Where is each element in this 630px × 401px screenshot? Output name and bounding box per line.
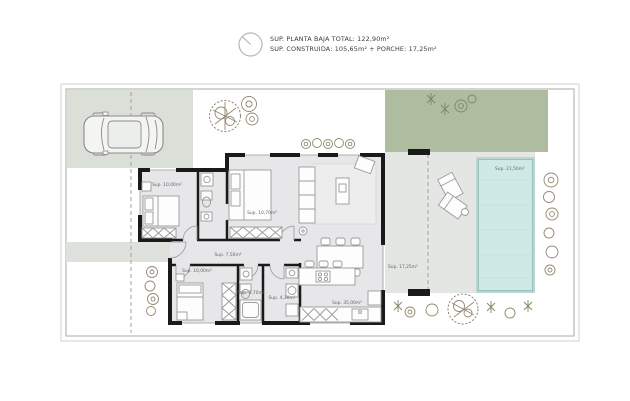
wardrobe <box>230 227 282 238</box>
wardrobe <box>222 283 236 320</box>
side-table <box>462 209 469 216</box>
bedroom1-area-label: Sup. 10,00m² <box>152 182 182 188</box>
laundry-fixtures <box>286 268 298 316</box>
kitchen-island <box>299 268 355 285</box>
left-plant-column <box>145 267 159 316</box>
tree-cluster-top <box>210 97 259 132</box>
ensuite-bathroom-fixtures <box>201 173 213 221</box>
oven-unit <box>368 291 381 305</box>
kitchen-counter <box>300 307 381 322</box>
lawn-area <box>385 90 548 152</box>
drawing-sheet: SUP. PLANTA BAJA TOTAL: 122,90m² SUP. CO… <box>0 0 630 401</box>
entrance-walkway <box>66 242 170 262</box>
porch-column-bottom <box>408 289 430 296</box>
kitchen-living-area-label: Sup. 35,00m² <box>332 300 362 306</box>
bedroom3-area-label: Sup. 10,00m² <box>182 268 212 274</box>
swimming-pool <box>476 157 535 293</box>
bedroom2-area-label: Sup. 10,70m² <box>247 210 277 216</box>
tv-unit <box>336 178 349 204</box>
hallway-area-label: Sup. 7,50m² <box>215 252 242 258</box>
living-room-furniture <box>299 156 376 235</box>
laundry-area-label: Sup. 4,30m² <box>269 295 296 301</box>
porch-area-label: Sup. 17,25m² <box>388 264 418 270</box>
right-edge-bushes <box>544 173 559 275</box>
wardrobe <box>142 228 176 238</box>
bush-row-above-living <box>302 139 355 149</box>
bottom-right-vegetation <box>394 294 532 324</box>
floor-lamp <box>299 227 307 235</box>
pool-area-label: Sup. 21,50m² <box>495 166 525 172</box>
porch-column-top <box>408 149 430 155</box>
floor-plan: Sup. 10,00m² Sup. 10,70m² Sup. 7,50m² Su… <box>0 0 630 401</box>
bathroom-area-label: Sup. 3,70m² <box>238 290 265 296</box>
car <box>84 112 163 155</box>
